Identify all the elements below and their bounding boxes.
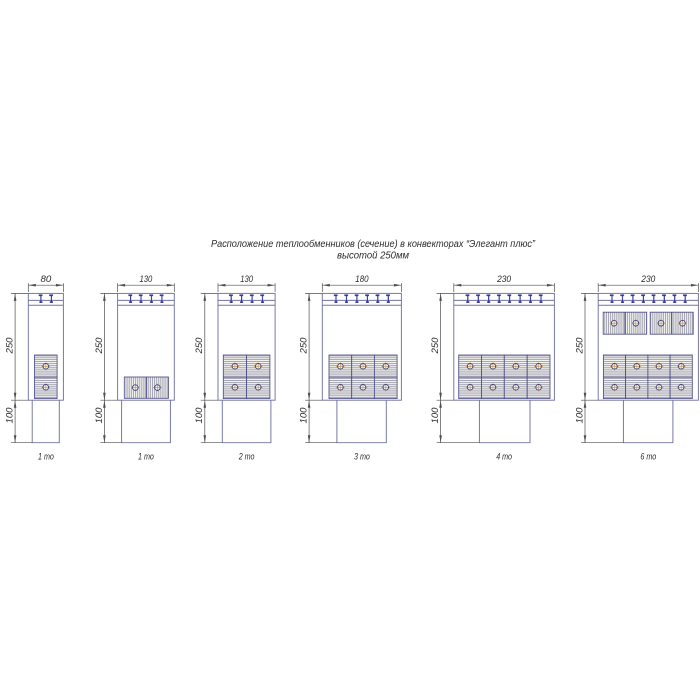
svg-text:100: 100 — [94, 407, 105, 424]
svg-text:180: 180 — [355, 274, 369, 285]
svg-text:230: 230 — [496, 274, 511, 285]
svg-text:100: 100 — [194, 407, 205, 424]
svg-text:130: 130 — [140, 274, 153, 285]
svg-text:высотой 250мм: высотой 250мм — [337, 250, 409, 261]
svg-text:80: 80 — [41, 274, 52, 285]
svg-text:1 то: 1 то — [138, 450, 154, 461]
svg-text:130: 130 — [240, 274, 253, 285]
svg-text:100: 100 — [574, 407, 585, 424]
svg-text:250: 250 — [299, 337, 310, 355]
svg-text:6 то: 6 то — [640, 450, 656, 461]
svg-text:3 то: 3 то — [354, 450, 370, 461]
svg-text:4 то: 4 то — [496, 450, 512, 461]
svg-text:250: 250 — [5, 337, 16, 355]
svg-text:250: 250 — [194, 337, 205, 355]
svg-text:250: 250 — [574, 337, 585, 355]
svg-text:250: 250 — [430, 337, 441, 355]
svg-text:Расположение теплообменников (: Расположение теплообменников (сечение) в… — [211, 239, 536, 250]
svg-text:2 то: 2 то — [238, 450, 255, 461]
svg-text:100: 100 — [299, 407, 310, 424]
svg-text:1 то: 1 то — [38, 450, 54, 461]
svg-text:100: 100 — [5, 407, 16, 424]
svg-text:250: 250 — [94, 337, 105, 355]
svg-text:100: 100 — [430, 407, 441, 424]
svg-text:230: 230 — [640, 274, 655, 285]
